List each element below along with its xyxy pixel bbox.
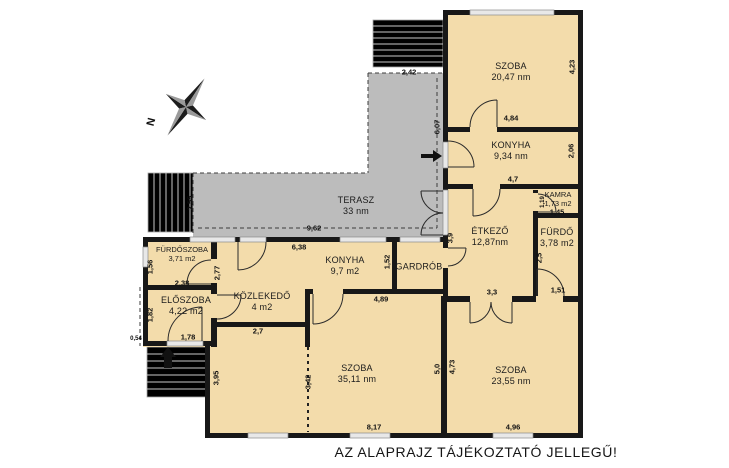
room-area: 35,11 nm	[338, 374, 376, 385]
room-name: FÜRDŐ	[540, 227, 574, 238]
room-name: KONYHA	[325, 255, 364, 266]
room-label-szoba-nagy: SZOBA20,47 nm	[491, 61, 530, 83]
room-area: 4,22 m2	[161, 306, 211, 317]
room-name: KONYHA	[491, 140, 530, 151]
room-area: 3,78 m2	[540, 238, 574, 249]
room-name: SZOBA	[491, 61, 530, 72]
dimension-label-dim-3-9: 3,9	[446, 233, 455, 243]
room-area: 4 m2	[234, 302, 291, 313]
room-area: 3,71 m2	[156, 254, 208, 263]
dimension-label-dim-4-96: 4,96	[506, 423, 521, 432]
dimension-label-dim-9-62: 9,62	[307, 224, 322, 233]
room-label-szoba-jobb: SZOBA23,55 nm	[491, 365, 530, 387]
room-label-furdo: FÜRDŐ3,78 m2	[540, 227, 574, 249]
room-label-kozlekedo: KÖZLEKEDŐ4 m2	[234, 291, 291, 313]
terrace-area	[193, 73, 443, 237]
room-name: ÉTKEZŐ	[471, 226, 508, 237]
dimension-label-dim-6-38: 6,38	[292, 243, 307, 252]
room-name: SZOBA	[491, 365, 530, 376]
dimension-label-dim-2-38: 2,38	[175, 279, 190, 288]
room-name: SZOBA	[338, 363, 376, 374]
room-area: 9,34 nm	[491, 151, 530, 162]
room-label-konyha-also: KONYHA9,7 m2	[325, 255, 364, 277]
disclaimer-note: AZ ALAPRAJZ TÁJÉKOZTATÓ JELLEGŰ!	[335, 444, 618, 460]
dimension-label-dim-0-54: 0,54	[130, 336, 142, 342]
stairs-top	[373, 20, 443, 67]
room-label-eloszoba: ELŐSZOBA4,22 m2	[161, 295, 211, 317]
dimension-label-dim-1-51: 1,51	[551, 286, 566, 295]
dimension-label-dim-2-77: 2,77	[213, 266, 222, 281]
dimension-label-dim-4-84: 4,84	[504, 114, 519, 123]
compass-icon: N	[143, 65, 224, 148]
dimension-label-dim-1-19: 1,19	[540, 196, 546, 208]
room-label-terasz: TERASZ33 nm	[338, 195, 375, 217]
dimension-label-dim-4-7: 4,7	[508, 175, 518, 184]
compass-north-label: N	[143, 116, 157, 127]
dimension-label-dim-1-56: 1,56	[146, 260, 155, 275]
dimension-label-dim-8-17: 8,17	[367, 423, 382, 432]
dimension-label-dim-4-73: 4,73	[448, 360, 457, 375]
room-area: 12,87nm	[471, 237, 508, 248]
dimension-label-dim-1-52: 1,52	[383, 255, 392, 270]
dimension-label-dim-2-42: 2,42	[402, 68, 417, 77]
dimension-label-dim-3-3: 3,3	[487, 288, 497, 297]
dimension-label-dim-5-0: 5,0	[433, 364, 442, 374]
dimension-label-dim-4-23: 4,23	[568, 60, 577, 75]
room-area: 33 nm	[338, 206, 375, 217]
room-label-furdoszoba: FÜRDŐSZOBA3,71 m2	[156, 245, 208, 263]
room-name: KAMRA	[544, 190, 571, 199]
dimension-label-dim-4-89: 4,89	[374, 295, 389, 304]
floor-plan-drawing: N	[0, 0, 729, 468]
dimension-label-dim-2-06: 2,06	[567, 144, 576, 159]
dimension-label-dim-2-7: 2,7	[253, 327, 263, 336]
room-name: TERASZ	[338, 195, 375, 206]
room-label-gardrob: GARDRÓB	[396, 262, 443, 273]
dimension-label-dim-1-82: 1,82	[146, 308, 155, 323]
room-area: 20,47 nm	[491, 72, 530, 83]
room-label-kamra: KAMRA1,73 m2	[544, 190, 571, 208]
room-name: ELŐSZOBA	[161, 295, 211, 306]
room-name: GARDRÓB	[396, 262, 443, 273]
room-area: 9,7 m2	[325, 266, 364, 277]
room-label-konyha-felso: KONYHA9,34 nm	[491, 140, 530, 162]
dimension-label-dim-3-95: 3,95	[212, 371, 221, 386]
room-label-etkezo: ÉTKEZŐ12,87nm	[471, 226, 508, 248]
room-area: 23,55 nm	[491, 376, 530, 387]
dimension-label-dim-3-42: 3,42	[304, 375, 313, 390]
room-name: KÖZLEKEDŐ	[234, 291, 291, 302]
room-name: FÜRDŐSZOBA	[156, 245, 208, 254]
dimension-label-dim-2-55: 2,55	[186, 196, 195, 211]
dimension-label-dim-6-07: 6,07	[433, 120, 442, 135]
floor-plan: N SZOBA20,47 nmKONYHA9,34 nmKAMRA1,73 m2…	[0, 0, 729, 468]
dimension-label-dim-1-45: 1,45	[550, 208, 565, 217]
dimension-label-dim-2-5: 2,5	[535, 253, 544, 263]
room-label-szoba-kozep: SZOBA35,11 nm	[338, 363, 376, 385]
dimension-label-dim-1-78: 1,78	[181, 333, 196, 342]
